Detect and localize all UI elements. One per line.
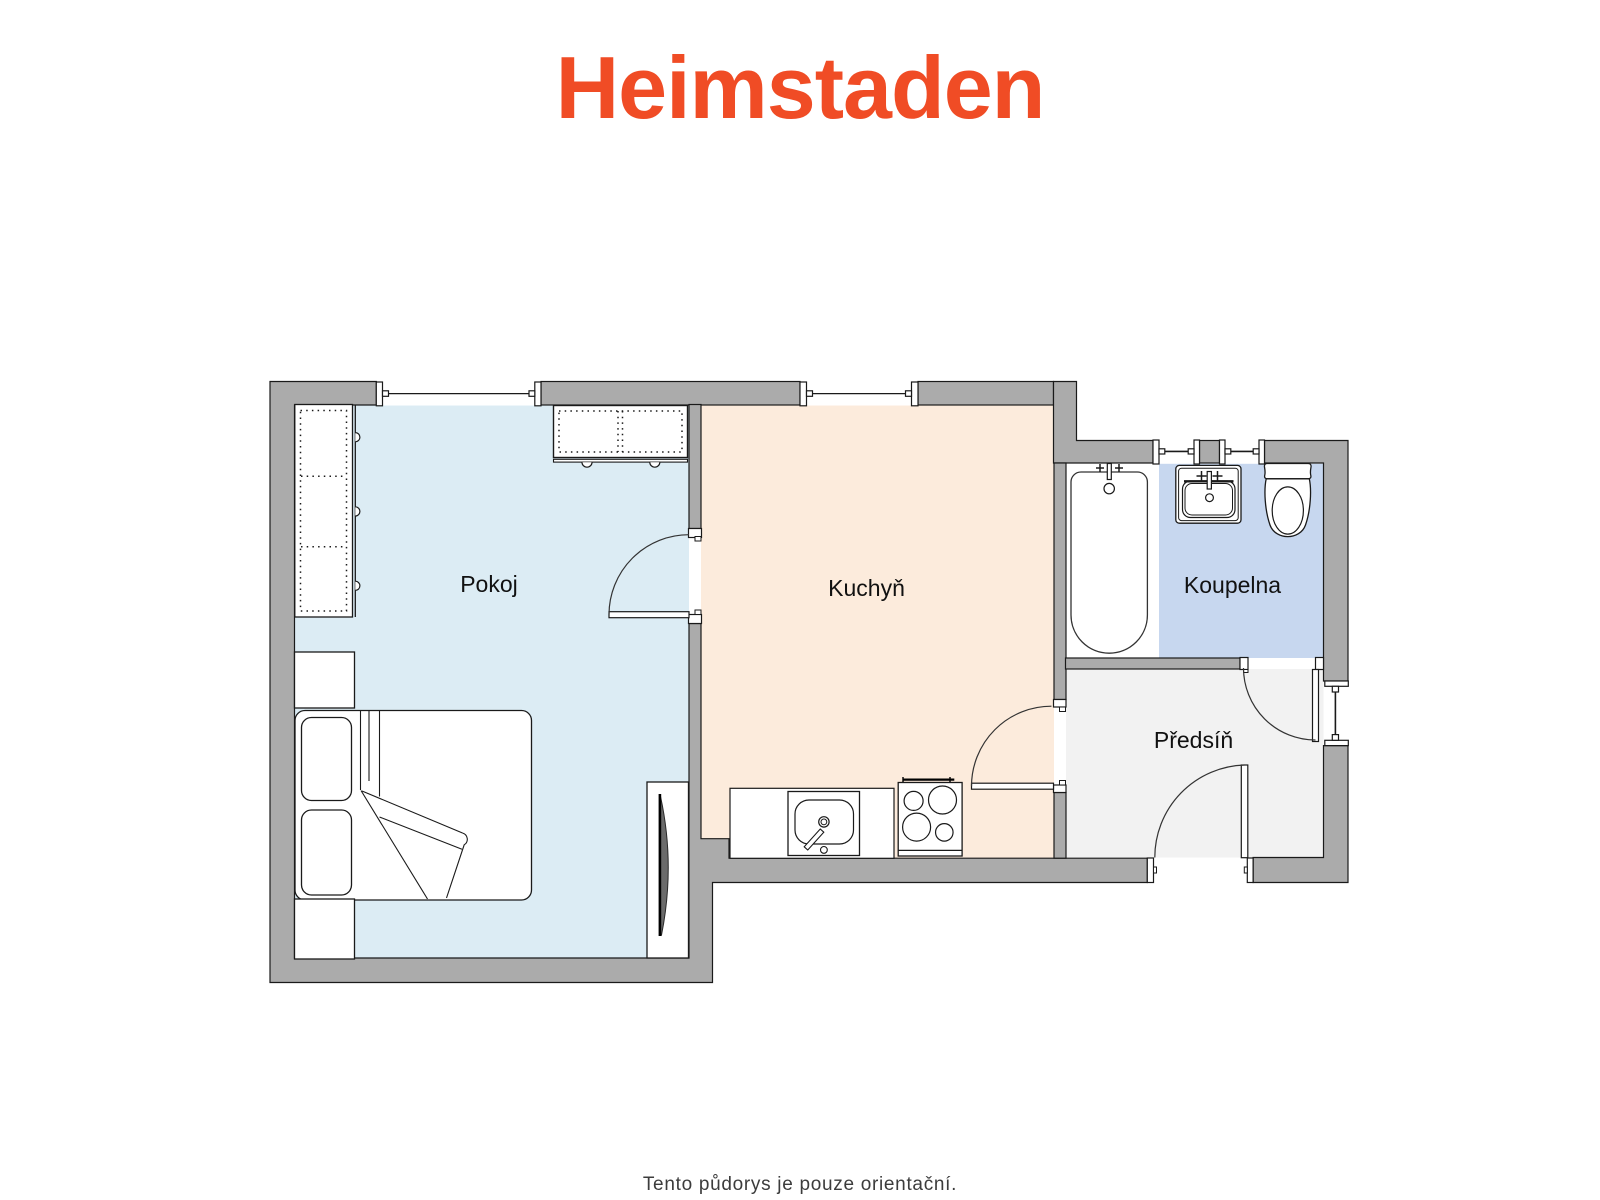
svg-text:Kuchyň: Kuchyň [828,575,905,601]
svg-text:Pokoj: Pokoj [460,571,518,597]
svg-text:Koupelna: Koupelna [1184,572,1281,598]
svg-text:Předsíň: Předsíň [1154,727,1233,753]
svg-text:Heimstaden: Heimstaden [556,38,1045,137]
svg-text:Tento půdorys je pouze orienta: Tento půdorys je pouze orientační. [643,1174,957,1195]
